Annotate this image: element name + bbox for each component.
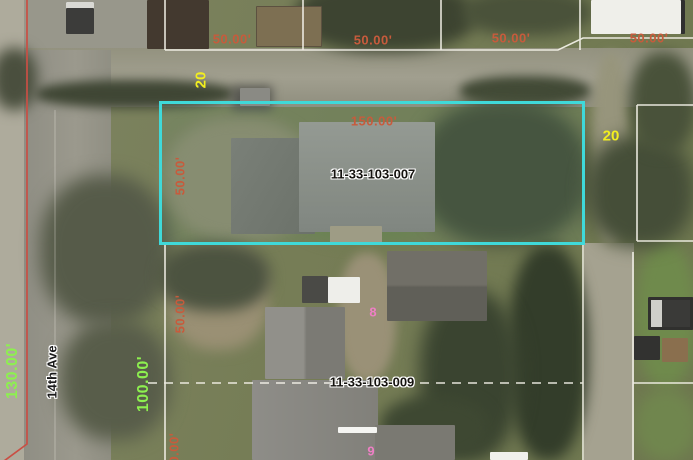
lawn-patch [636,390,693,460]
conifer-tree [508,245,588,460]
bottom-house-roof [375,425,455,460]
garage-roof [387,251,487,321]
pickup-bed [302,276,328,303]
south-house-roof [265,307,345,379]
house-roof [147,0,209,49]
car [66,2,94,34]
tree-canopy [160,243,270,311]
roof-trim [338,427,377,433]
tree-shadow [0,48,37,110]
bottom-house-roof [252,380,378,460]
tree-shadow [40,175,170,325]
shed-roof [662,338,688,362]
alley [584,243,634,460]
car [634,336,660,360]
selected-parcel-outline[interactable] [159,101,585,245]
tree-shadow [60,320,170,440]
aerial-parcel-map[interactable]: 50.00' 50.00' 50.00' 50.00' 150.00' 50.0… [0,0,693,460]
shed-roof [256,6,322,47]
tree-canopy [630,52,693,152]
tree-canopy [586,135,693,247]
white-building-roof [591,0,681,34]
car [490,452,528,460]
pickup-cab [328,277,360,303]
van [648,297,693,330]
